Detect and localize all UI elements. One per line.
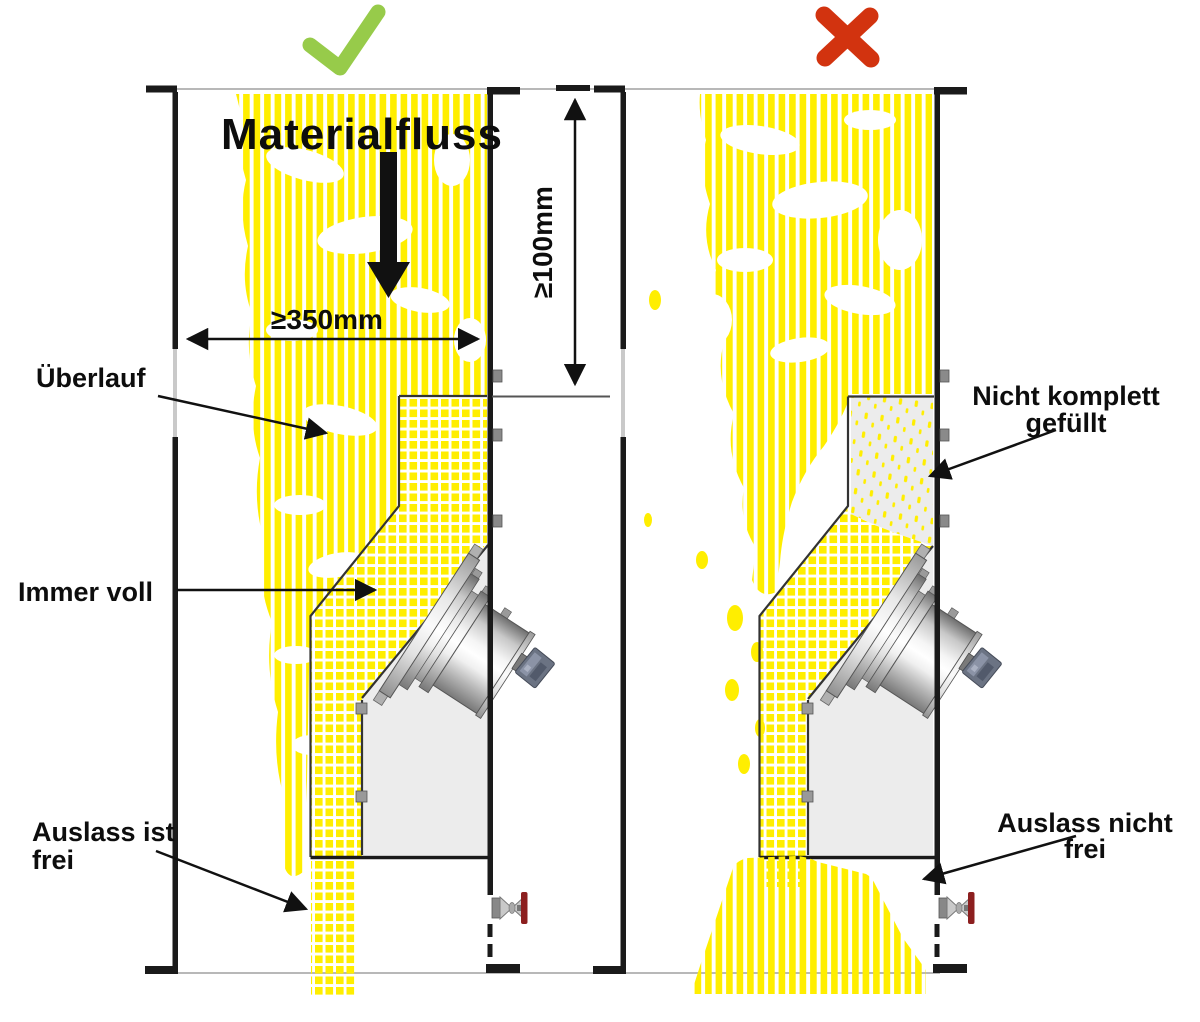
- bolt-icon: [802, 703, 813, 714]
- bolt-icon: [356, 791, 367, 802]
- bolt-icon: [802, 791, 813, 802]
- diagram-svg: Materialfluss ≥350mm ≥100mm Überlauf Imm…: [0, 0, 1200, 1022]
- checkmark-icon: [310, 12, 378, 68]
- not-filled-label-line2: gefüllt: [1026, 408, 1107, 438]
- outlet-free-label-line1: Auslass ist: [32, 817, 175, 847]
- material-flow-label: Materialfluss: [221, 110, 503, 159]
- correct-panel: Materialfluss ≥350mm ≥100mm Überlauf Imm…: [18, 12, 610, 995]
- incorrect-panel: Nicht komplett gefüllt Auslass nicht fre…: [593, 15, 1173, 994]
- outlet-material-column: [311, 857, 357, 995]
- height-dimension: ≥100mm: [492, 85, 610, 397]
- not-filled-label-line1: Nicht komplett: [972, 381, 1160, 411]
- svg-text:≥350mm: ≥350mm: [271, 304, 383, 335]
- installation-diagram: Materialfluss ≥350mm ≥100mm Überlauf Imm…: [0, 0, 1200, 1022]
- bolt-icon: [356, 703, 367, 714]
- outlet-blocked-arrow: [924, 836, 1076, 879]
- overflow-label: Überlauf: [36, 363, 147, 393]
- outlet-free-label-line2: frei: [32, 845, 74, 875]
- svg-text:≥100mm: ≥100mm: [527, 186, 558, 298]
- always-full-label: Immer voll: [18, 577, 153, 607]
- cross-icon: [824, 15, 871, 59]
- material-pile: [691, 856, 926, 994]
